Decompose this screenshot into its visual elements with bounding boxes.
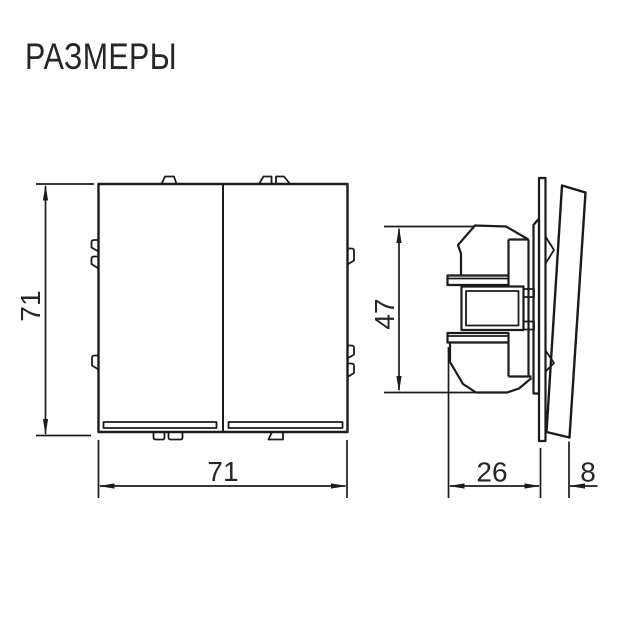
side-depth-label: 26 [476,457,507,488]
side-view-drawing [448,178,586,441]
mechanism-upper-claw [458,226,529,276]
mechanism-block [509,240,532,377]
front-right-slot [229,422,343,428]
arrowhead-up [396,227,401,243]
technical-drawing: РАЗМЕРЫ [0,0,630,629]
arrowhead-right [525,483,541,488]
front-width-label: 71 [207,456,238,487]
mechanism-upper-bar [448,276,509,286]
arrowhead-down [396,376,401,392]
arrowhead-left [99,483,115,488]
side-depth-dimension: 26 [449,347,541,498]
rocker-key [547,186,586,438]
mounting-plate [539,178,546,441]
arrowhead-left [449,483,465,488]
front-left-slot [104,422,217,428]
rocker-depth-dimension: 8 [569,442,598,499]
arrowhead-right [331,483,347,488]
rocker-clip-top [546,237,555,264]
arrowhead-up [43,185,48,201]
front-height-dimension: 71 [15,184,94,436]
mechanism-frame-inner [466,291,519,326]
front-view-drawing [92,177,355,440]
mechanism-frame-outer [462,287,524,331]
arrowhead-down [43,419,48,435]
mechanism-lower-claw [450,343,532,393]
front-height-label: 71 [15,290,46,321]
page-title: РАЗМЕРЫ [25,36,177,77]
mechanism-lower-bar [448,333,509,343]
rocker-depth-label: 8 [580,457,596,488]
dimensions-drawing-page: РАЗМЕРЫ [0,0,630,629]
side-height-label: 47 [369,298,400,329]
front-width-dimension: 71 [99,440,348,498]
